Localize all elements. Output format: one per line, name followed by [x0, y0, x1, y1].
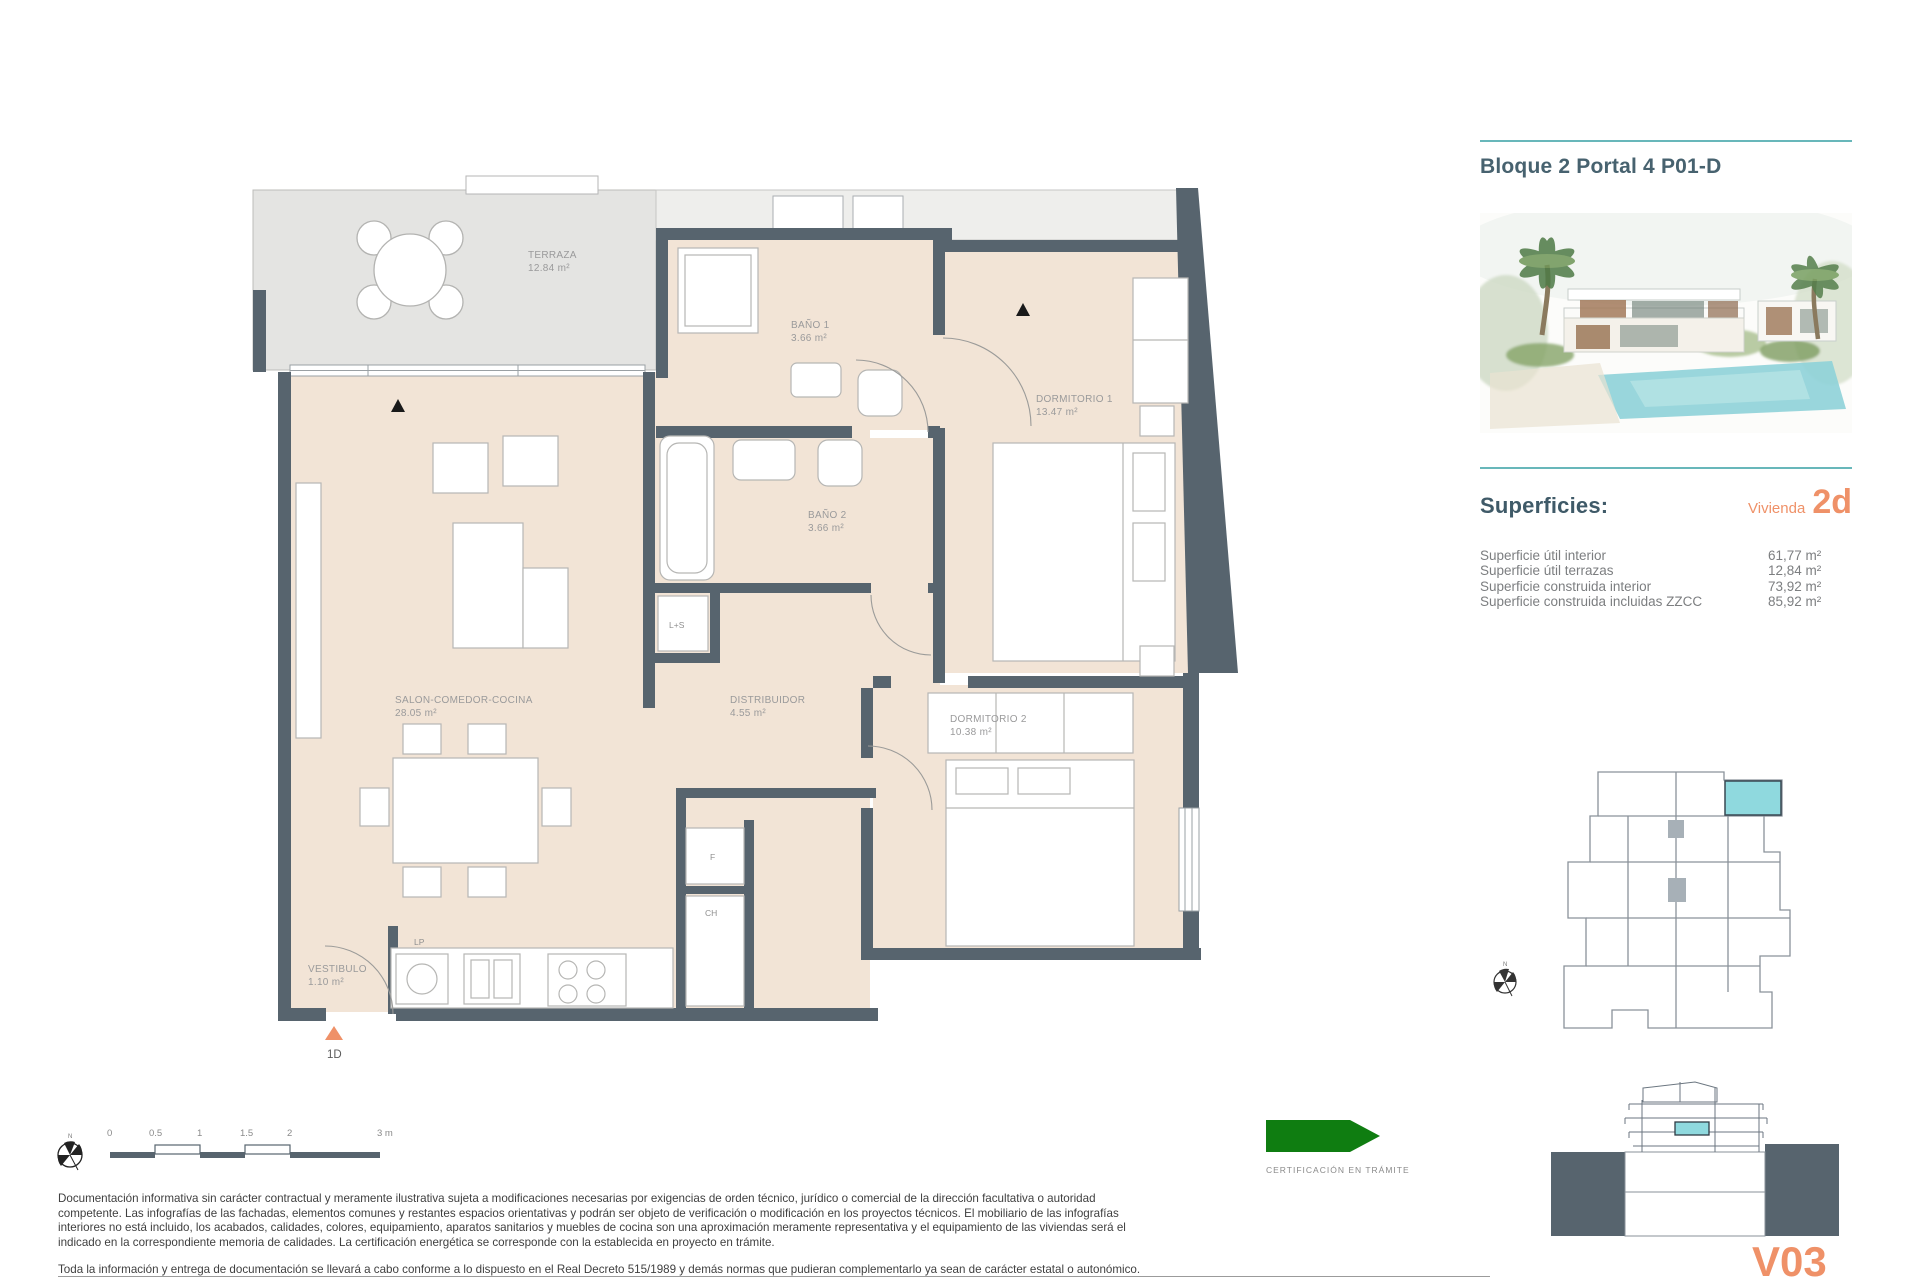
certification-block: CERTIFICACIÓN EN TRÁMITE — [1266, 1120, 1436, 1175]
svg-text:1.5: 1.5 — [240, 1128, 253, 1139]
svg-text:10.38 m²: 10.38 m² — [950, 727, 992, 738]
floor-plan: TERRAZA 12.84 m² BAÑO 1 3.66 m² DORMITOR… — [228, 148, 1248, 1078]
unit-entry-marker — [325, 1026, 343, 1040]
svg-text:N: N — [68, 1134, 72, 1140]
tag-f: F — [710, 852, 715, 862]
label-salon: SALON-COMEDOR-COCINA — [395, 695, 533, 706]
row-value: 73,92 m² — [1768, 579, 1821, 594]
table-row: Superficie útil terrazas 12,84 m² — [1480, 563, 1852, 578]
label-dormitorio2: DORMITORIO 2 — [950, 714, 1027, 725]
superficies-table: Superficie útil interior 61,77 m² Superf… — [1480, 548, 1852, 610]
window-dorm2 — [1179, 808, 1199, 911]
label-vestibulo: VESTIBULO — [308, 964, 367, 975]
highlighted-unit — [1725, 781, 1781, 815]
row-value: 85,92 m² — [1768, 594, 1821, 609]
svg-text:1: 1 — [197, 1128, 202, 1139]
label-bano2: BAÑO 2 — [808, 508, 847, 521]
row-label: Superficie útil interior — [1480, 548, 1606, 563]
table-row: Superficie útil interior 61,77 m² — [1480, 548, 1852, 563]
label-distribuidor: DISTRIBUIDOR — [730, 695, 805, 706]
row-label: Superficie construida incluidas ZZCC — [1480, 594, 1702, 609]
page-title: Bloque 2 Portal 4 P01-D — [1480, 155, 1852, 179]
scale-bar: 0 0.5 1 1.5 2 3 m — [92, 1126, 422, 1175]
certification-arrow-icon — [1266, 1120, 1382, 1152]
tag-lp: LP — [414, 937, 425, 947]
terrace-glass-doors — [290, 365, 645, 376]
svg-text:0: 0 — [107, 1128, 112, 1139]
svg-text:4.55 m²: 4.55 m² — [730, 708, 766, 719]
footer-rule — [58, 1276, 1490, 1277]
label-terraza: TERRAZA — [528, 250, 577, 261]
tag-ls: L+S — [669, 620, 685, 630]
sidebar-top-rule — [1480, 140, 1852, 142]
row-label: Superficie útil terrazas — [1480, 563, 1614, 578]
highlighted-unit-elevation — [1675, 1122, 1709, 1135]
building-elevation — [1545, 1080, 1845, 1245]
vivienda-code: 2d — [1812, 487, 1852, 518]
svg-text:0.5: 0.5 — [149, 1128, 162, 1139]
label-bano1: BAÑO 1 — [791, 318, 830, 331]
svg-text:12.84 m²: 12.84 m² — [528, 263, 570, 274]
table-row: Superficie construida incluidas ZZCC 85,… — [1480, 594, 1852, 609]
building-render-image — [1480, 213, 1852, 433]
svg-text:13.47 m²: 13.47 m² — [1036, 407, 1078, 418]
superficies-rule — [1480, 467, 1852, 469]
site-compass-icon: N — [1488, 958, 1522, 998]
label-dormitorio1: DORMITORIO 1 — [1036, 394, 1113, 405]
svg-text:N: N — [1503, 962, 1507, 968]
unit-entry-label: 1D — [327, 1049, 342, 1061]
row-value: 12,84 m² — [1768, 563, 1821, 578]
floorplan-sheet: TERRAZA 12.84 m² BAÑO 1 3.66 m² DORMITOR… — [0, 0, 1920, 1280]
disclaimer-paragraph-1: Documentación informativa sin carácter c… — [58, 1192, 1150, 1250]
version-label: V03 — [1752, 1238, 1827, 1280]
legal-disclaimer: Documentación informativa sin carácter c… — [58, 1192, 1150, 1280]
north-compass-icon: N — [52, 1130, 88, 1172]
site-key-plan — [1528, 758, 1818, 1058]
svg-text:1.10 m²: 1.10 m² — [308, 977, 344, 988]
row-label: Superficie construida interior — [1480, 579, 1651, 594]
svg-text:28.05 m²: 28.05 m² — [395, 708, 437, 719]
svg-text:3.66 m²: 3.66 m² — [808, 523, 844, 534]
svg-text:3.66 m²: 3.66 m² — [791, 333, 827, 344]
svg-text:2: 2 — [287, 1128, 292, 1139]
row-value: 61,77 m² — [1768, 548, 1821, 563]
certification-label: CERTIFICACIÓN EN TRÁMITE — [1266, 1165, 1436, 1175]
vivienda-label: Vivienda — [1748, 500, 1805, 517]
superficies-heading: Superficies: — [1480, 493, 1608, 519]
table-row: Superficie construida interior 73,92 m² — [1480, 579, 1852, 594]
superficies-header: Superficies: Vivienda 2d — [1480, 487, 1852, 519]
svg-text:3 m: 3 m — [377, 1128, 393, 1139]
tag-ch: CH — [705, 908, 717, 918]
